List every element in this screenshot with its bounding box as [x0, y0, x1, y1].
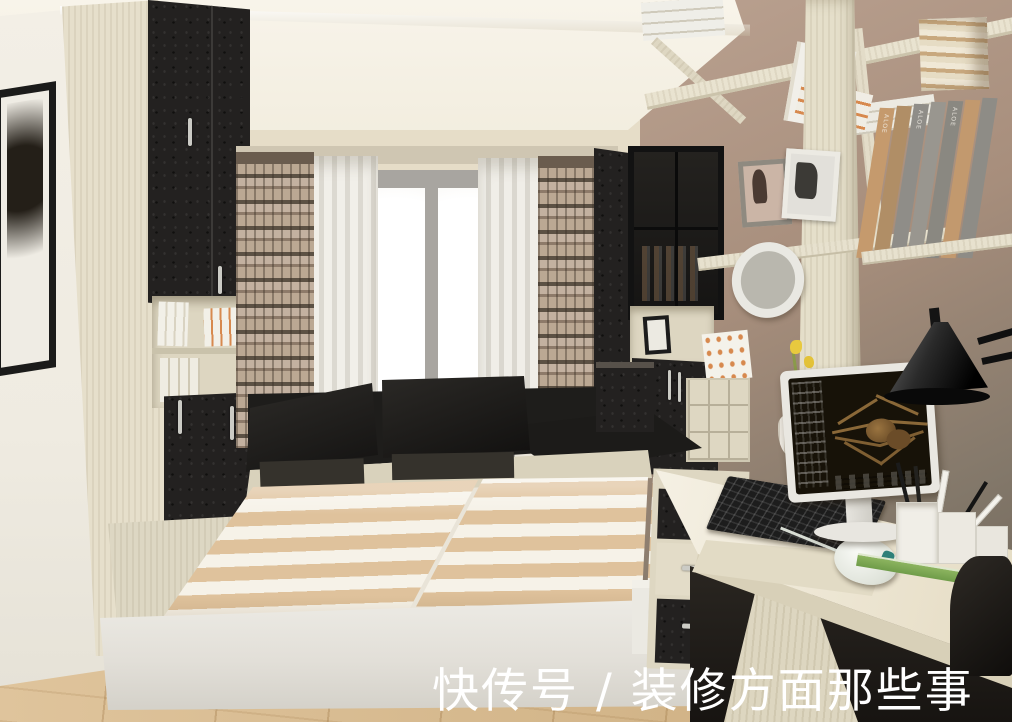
lamp-arm	[977, 317, 1012, 345]
wardrobe-upper-doors	[148, 0, 250, 312]
storage-box-on-sill	[596, 362, 654, 432]
book-spines	[157, 301, 189, 346]
lamp-rim	[884, 388, 990, 405]
book-spines	[203, 307, 238, 346]
curtain-rod-pocket	[236, 152, 314, 164]
desk-lamp	[878, 298, 1012, 432]
door-handle	[218, 266, 222, 294]
pen-holder-box	[896, 502, 938, 564]
door-gap	[211, 0, 213, 312]
door-handle	[188, 118, 192, 146]
portrait-photo	[751, 169, 767, 204]
cubby-grid	[686, 378, 750, 462]
picture-mat	[1, 90, 49, 368]
pen-holder-box	[938, 512, 976, 564]
watermark: 快传号 / 装修方面那些事	[432, 652, 974, 721]
desktop-icon-rows	[791, 381, 828, 489]
door-handle	[230, 406, 234, 440]
spine-label: ALOE	[880, 114, 890, 134]
door-handle	[178, 400, 182, 434]
picture-frame-small	[782, 148, 841, 222]
book-stack-flat	[641, 0, 725, 41]
storage-box-interior	[392, 452, 514, 480]
storage-box-interior	[260, 458, 365, 488]
storage-lid-open	[376, 372, 534, 464]
room-scene: ALOE ALOE ALOE	[0, 0, 1012, 722]
lamp-arm	[981, 342, 1012, 365]
spine-label: ALOE	[914, 110, 924, 130]
striped-gift-box	[919, 17, 989, 91]
bw-photo	[794, 162, 818, 199]
spine-label: ALOE	[948, 107, 958, 127]
greeting-cards	[702, 330, 753, 383]
flower-blossom	[790, 340, 802, 354]
picture-art	[7, 98, 43, 360]
picture-frame	[0, 81, 56, 377]
